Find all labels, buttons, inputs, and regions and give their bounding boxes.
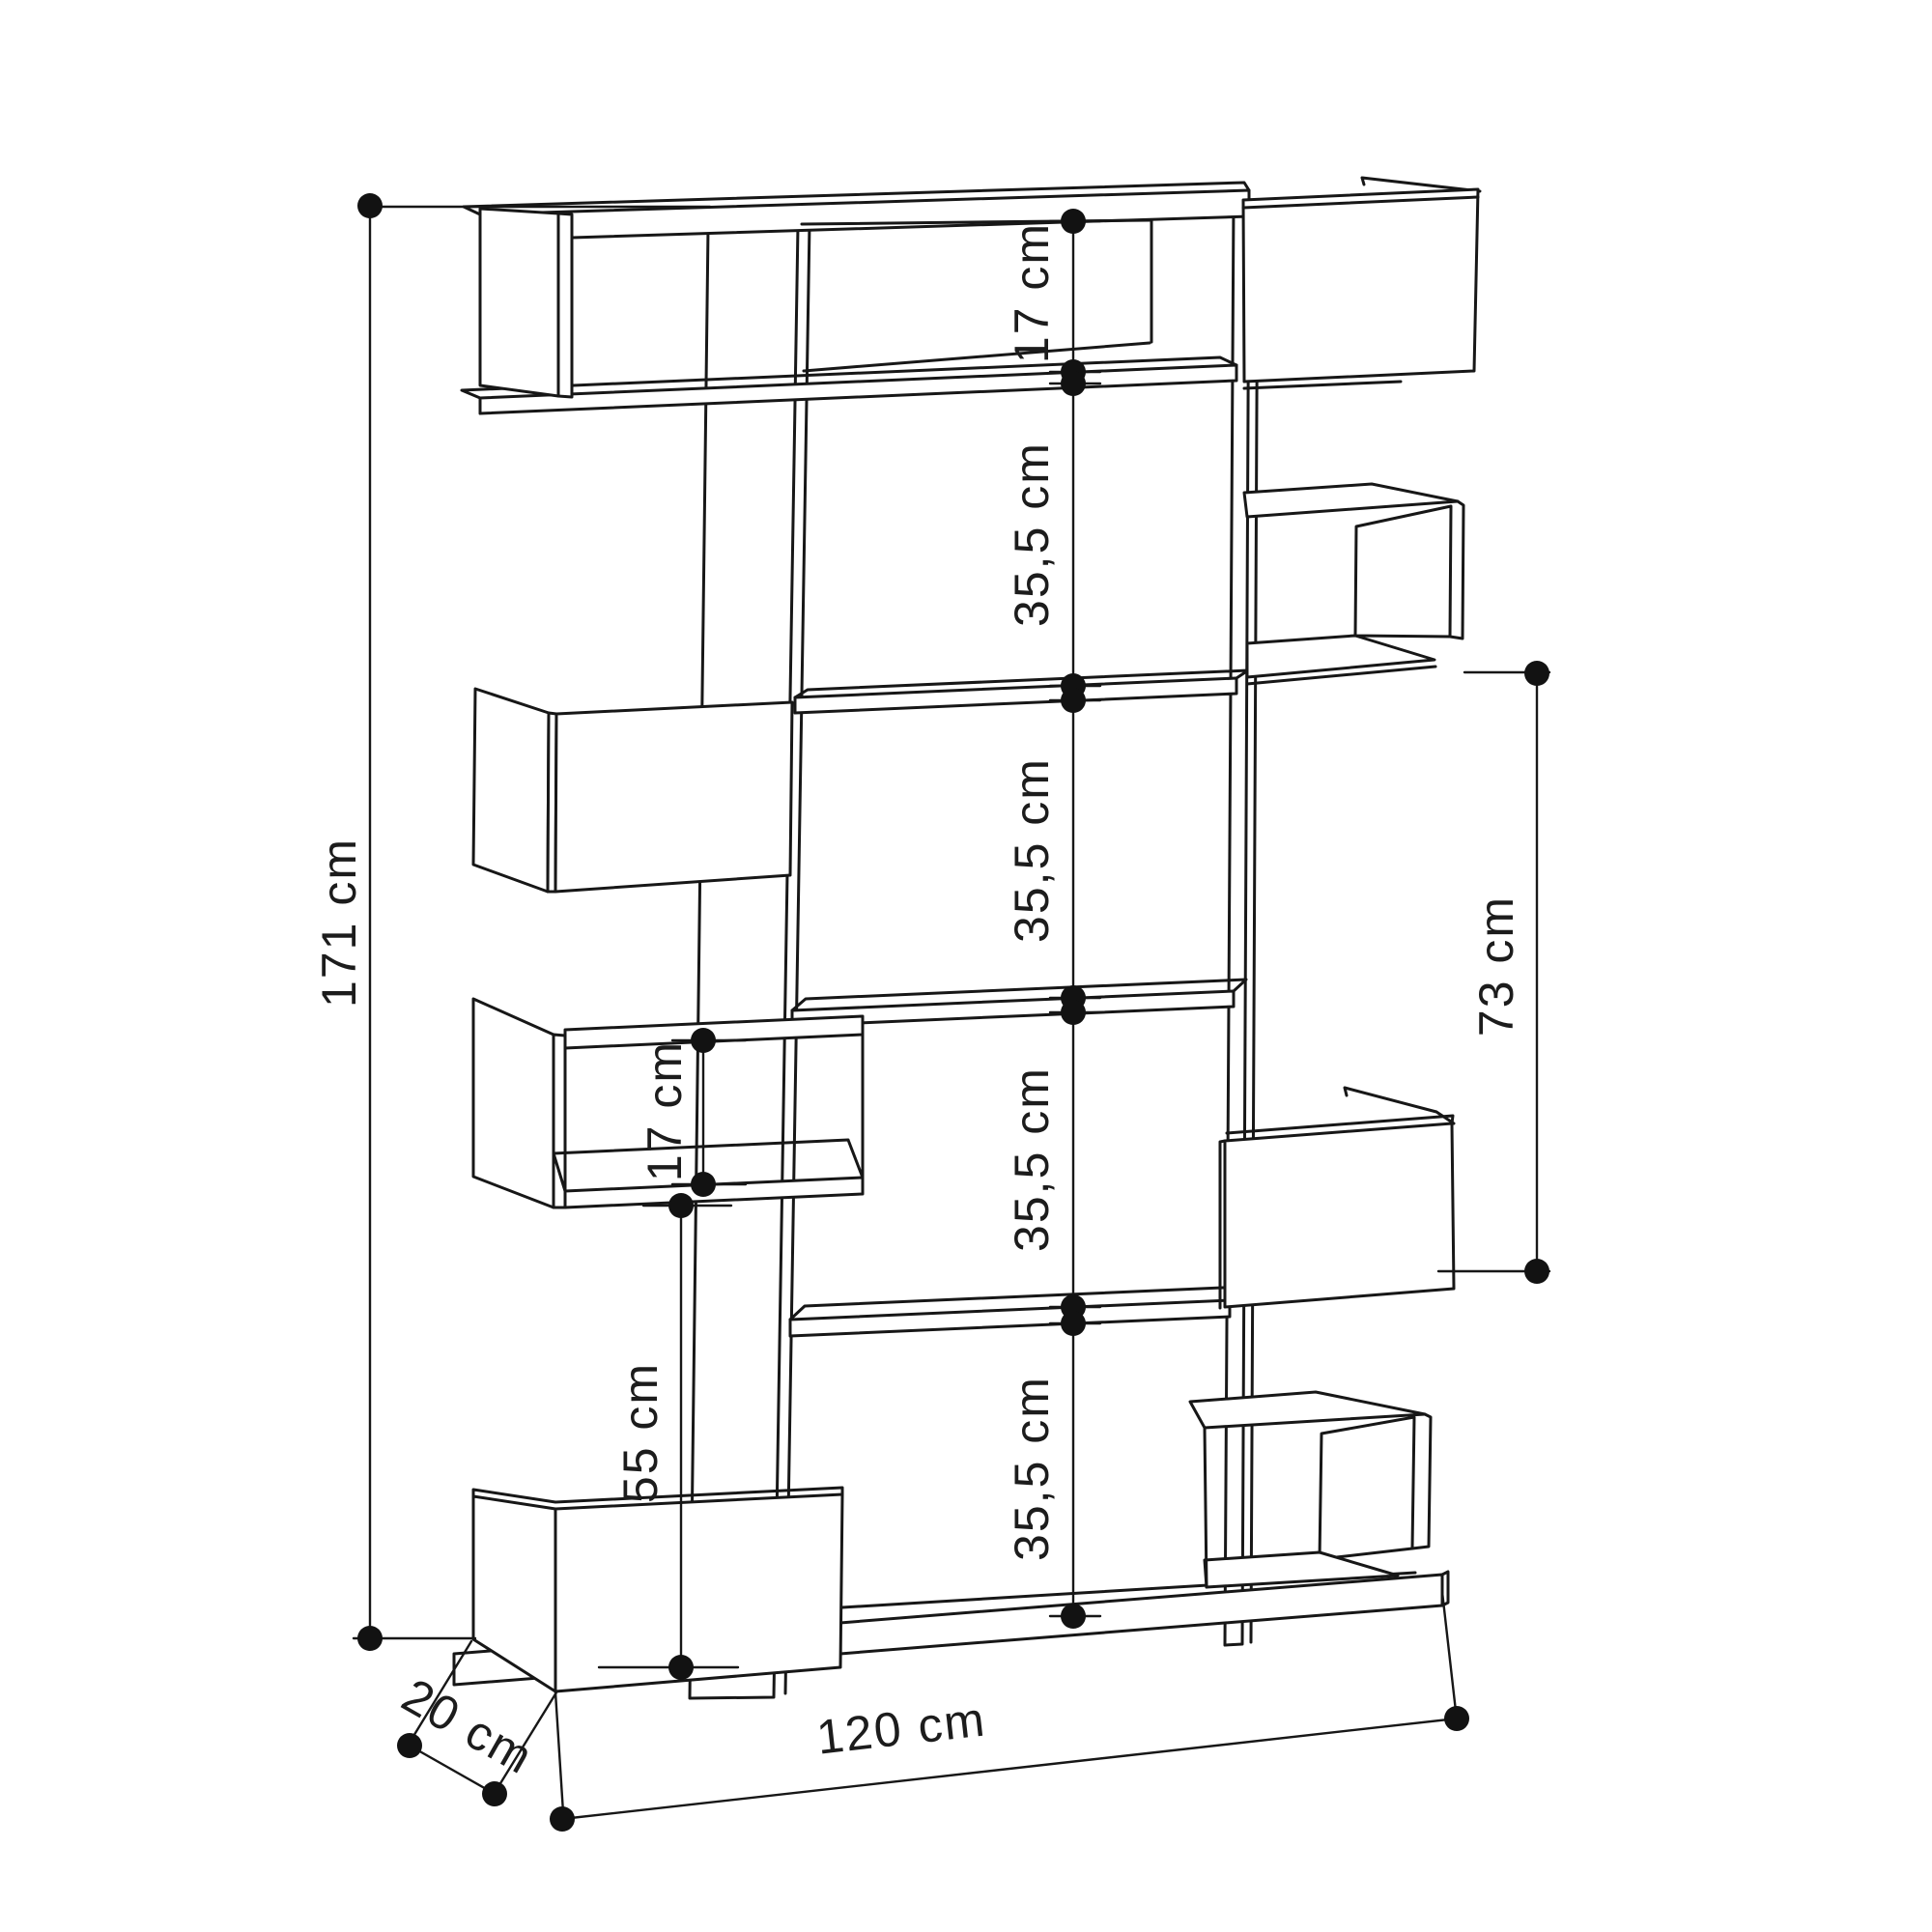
dim-dot xyxy=(1061,688,1086,713)
dim-dot xyxy=(357,193,383,218)
right-lower-closed-box xyxy=(1220,1088,1454,1308)
shelf-c xyxy=(795,678,1236,713)
left-cubby-side-panel xyxy=(473,999,554,1207)
dim-dot xyxy=(668,1655,694,1680)
dim-label-total-depth: 20 cm xyxy=(393,1668,543,1785)
dim-dot xyxy=(691,1028,716,1053)
left-drawer-box xyxy=(473,689,792,892)
dim-right-section: 73 cm xyxy=(1438,661,1549,1284)
dim-label-shelf-gap-1: 35,5 cm xyxy=(1005,441,1059,627)
dim-label-shelf-gap-3: 35,5 cm xyxy=(1005,1066,1059,1252)
dim-label-right-section: 73 cm xyxy=(1469,895,1523,1037)
top-right-box xyxy=(1243,178,1480,388)
top-board xyxy=(480,190,1249,241)
right-middle-box-inner-wall xyxy=(1355,506,1451,637)
dim-dot xyxy=(668,1193,694,1218)
dim-dot xyxy=(1524,661,1549,686)
right-middle-box-bottom-face xyxy=(1247,636,1435,677)
dim-dot xyxy=(1061,371,1086,396)
dim-dot xyxy=(1061,209,1086,234)
right-post xyxy=(1225,202,1249,1645)
bottom-left-box-front xyxy=(555,1494,842,1691)
dim-label-total-height: 171 cm xyxy=(312,838,366,1008)
bottom-left-box xyxy=(473,1488,842,1691)
right-lower-box-front xyxy=(1225,1123,1454,1307)
dim-dot xyxy=(1524,1259,1549,1284)
dim-label-shelf-gap-2: 35,5 cm xyxy=(1005,757,1059,943)
dim-dot xyxy=(1061,1311,1086,1336)
top-left-box-side-panel xyxy=(480,209,558,396)
dim-total-width-line xyxy=(562,1719,1457,1819)
shelf-e xyxy=(790,1300,1230,1336)
dim-dot xyxy=(397,1733,422,1758)
bottom-right-box-left-edge xyxy=(1205,1428,1207,1587)
diagram-canvas: 171 cm 17 cm 35,5 cm 35,5 cm 35,5 cm 35,… xyxy=(0,0,1932,1932)
dim-label-left-lower: 55 cm xyxy=(613,1362,668,1503)
dim-dot xyxy=(1061,1000,1086,1025)
top-right-box-front xyxy=(1243,189,1478,382)
dim-label-left-cubby: 17 cm xyxy=(638,1040,692,1181)
left-drawer-side-panel xyxy=(473,689,549,892)
dim-dot xyxy=(1444,1706,1469,1731)
dim-dot xyxy=(482,1781,507,1806)
dim-shelf-chain: 17 cm 35,5 cm 35,5 cm 35,5 cm 35,5 cm xyxy=(1005,209,1100,1629)
bookshelf-structure xyxy=(454,183,1448,1698)
center-post xyxy=(690,226,798,1698)
dim-dot xyxy=(691,1172,716,1197)
dim-label-total-width: 120 cm xyxy=(814,1691,989,1764)
dim-label-top-cell: 17 cm xyxy=(1005,222,1059,363)
top-left-box-front-edge xyxy=(558,213,572,397)
dim-dot xyxy=(1061,1604,1086,1629)
bottom-right-box-inner-wall xyxy=(1320,1417,1414,1559)
furniture-dimension-diagram: 171 cm 17 cm 35,5 cm 35,5 cm 35,5 cm 35,… xyxy=(0,0,1932,1932)
dim-label-shelf-gap-4: 35,5 cm xyxy=(1005,1376,1059,1561)
top-right-box-bottom-edge xyxy=(1244,382,1401,388)
dim-dot xyxy=(357,1626,383,1651)
dim-dot xyxy=(550,1806,575,1832)
left-drawer-front xyxy=(555,702,792,892)
right-middle-open-box xyxy=(1244,484,1463,684)
top-left-box xyxy=(480,209,572,397)
